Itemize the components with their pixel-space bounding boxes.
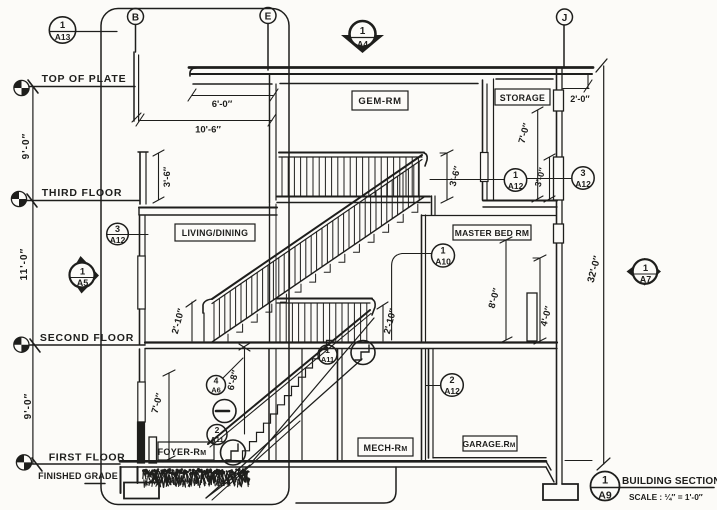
svg-text:11'-0″: 11'-0″ xyxy=(19,248,30,281)
svg-text:1: 1 xyxy=(643,263,649,274)
svg-text:MASTER BED RM: MASTER BED RM xyxy=(455,228,529,238)
svg-text:STORAGE: STORAGE xyxy=(500,93,545,103)
svg-text:A11: A11 xyxy=(210,435,223,444)
svg-text:A4: A4 xyxy=(357,39,368,49)
svg-text:3: 3 xyxy=(580,168,585,178)
svg-text:2: 2 xyxy=(215,425,220,435)
svg-text:A6: A6 xyxy=(211,386,221,395)
svg-text:1: 1 xyxy=(60,20,66,31)
svg-text:4: 4 xyxy=(214,376,219,386)
svg-text:10'-6″: 10'-6″ xyxy=(195,125,221,136)
svg-text:1: 1 xyxy=(80,267,86,278)
svg-text:1: 1 xyxy=(360,26,366,37)
svg-text:FINISHED GRADE: FINISHED GRADE xyxy=(38,471,118,481)
svg-text:1: 1 xyxy=(513,170,518,180)
svg-text:GARAGE.RM: GARAGE.RM xyxy=(462,439,515,449)
svg-text:A7: A7 xyxy=(640,275,652,285)
svg-text:1: 1 xyxy=(325,345,330,355)
svg-text:J: J xyxy=(562,13,568,24)
svg-text:A10: A10 xyxy=(435,257,451,267)
svg-text:FIRST FLOOR: FIRST FLOOR xyxy=(49,452,126,464)
svg-text:GEM-RM: GEM-RM xyxy=(358,96,401,107)
svg-text:1: 1 xyxy=(602,475,608,487)
svg-text:A9: A9 xyxy=(598,490,612,502)
svg-text:3'-6″: 3'-6″ xyxy=(162,166,173,187)
svg-text:2'-0″: 2'-0″ xyxy=(570,94,590,104)
svg-text:LIVING/DINING: LIVING/DINING xyxy=(182,228,248,238)
svg-text:FOYER-RM: FOYER-RM xyxy=(158,447,207,457)
svg-text:2: 2 xyxy=(449,375,454,385)
svg-text:A12: A12 xyxy=(575,179,591,189)
svg-text:A13: A13 xyxy=(55,32,71,42)
svg-text:A12: A12 xyxy=(110,235,126,245)
svg-text:1: 1 xyxy=(440,246,445,256)
svg-text:MECH-RM: MECH-RM xyxy=(364,443,408,453)
svg-text:A5: A5 xyxy=(77,278,89,288)
svg-text:THIRD FLOOR: THIRD FLOOR xyxy=(42,187,123,199)
svg-text:B: B xyxy=(132,13,139,24)
svg-text:9'-0″: 9'-0″ xyxy=(23,393,34,420)
svg-text:A12: A12 xyxy=(508,181,524,191)
svg-text:TOP OF PLATE: TOP OF PLATE xyxy=(42,73,127,85)
svg-text:6'-0″: 6'-0″ xyxy=(212,99,233,110)
svg-text:BUILDING SECTION: BUILDING SECTION xyxy=(622,476,717,487)
svg-text:A12: A12 xyxy=(444,386,460,396)
svg-text:A11: A11 xyxy=(321,355,334,364)
svg-text:SCALE : ¼″ = 1'-0″: SCALE : ¼″ = 1'-0″ xyxy=(629,492,703,502)
svg-text:SECOND FLOOR: SECOND FLOOR xyxy=(40,332,134,344)
svg-text:9'-0″: 9'-0″ xyxy=(21,133,32,160)
svg-text:E: E xyxy=(265,12,272,23)
svg-text:3: 3 xyxy=(115,224,120,234)
